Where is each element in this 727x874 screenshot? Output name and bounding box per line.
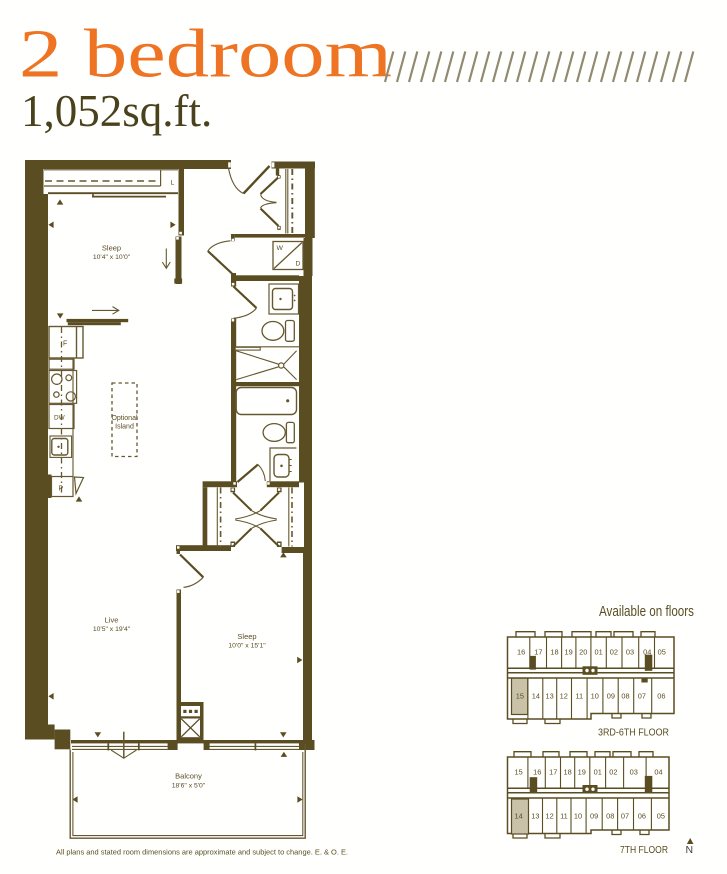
svg-text:16: 16 [533, 768, 541, 777]
svg-text:P: P [59, 486, 64, 493]
svg-text:Live: Live [105, 616, 119, 625]
svg-text:16: 16 [517, 648, 525, 657]
svg-text:Sleep: Sleep [102, 244, 121, 253]
svg-text:7TH FLOOR: 7TH FLOOR [620, 844, 668, 856]
svg-text:11: 11 [560, 812, 568, 821]
svg-text:10: 10 [574, 812, 582, 821]
svg-text:10'5" x 19'4": 10'5" x 19'4" [93, 626, 131, 633]
svg-text:Sleep: Sleep [237, 632, 256, 641]
svg-text:15: 15 [516, 692, 524, 701]
svg-text:05: 05 [657, 812, 665, 821]
svg-text:10'4" x 10'0": 10'4" x 10'0" [93, 254, 131, 261]
svg-text:15: 15 [514, 768, 522, 777]
svg-text:All plans and stated room dime: All plans and stated room dimensions are… [56, 848, 348, 857]
svg-text:17: 17 [549, 768, 557, 777]
svg-text:DW: DW [54, 415, 66, 422]
svg-text:Optional: Optional [111, 415, 138, 422]
svg-text:2 bedroom: 2 bedroom [19, 16, 392, 92]
svg-text:18: 18 [550, 648, 558, 657]
svg-text:09: 09 [607, 692, 615, 701]
svg-text:13: 13 [531, 812, 539, 821]
svg-text:11: 11 [575, 692, 583, 701]
svg-text:08: 08 [621, 692, 629, 701]
svg-text:1,052sq.ft.: 1,052sq.ft. [21, 86, 212, 136]
svg-text:14: 14 [532, 692, 540, 701]
svg-text:06: 06 [638, 812, 646, 821]
svg-text:05: 05 [658, 648, 666, 657]
svg-text:04: 04 [654, 768, 662, 777]
svg-text:Island: Island [115, 424, 134, 431]
svg-text:09: 09 [590, 812, 598, 821]
svg-text:04: 04 [643, 648, 651, 657]
svg-text:18: 18 [563, 768, 571, 777]
svg-text:18'6" x 5'0": 18'6" x 5'0" [172, 783, 206, 790]
svg-text:07: 07 [621, 812, 629, 821]
svg-text:12: 12 [545, 812, 553, 821]
svg-text:Balcony: Balcony [175, 772, 202, 781]
svg-text:19: 19 [564, 648, 572, 657]
svg-text:08: 08 [606, 812, 614, 821]
svg-text:14: 14 [514, 812, 522, 821]
svg-text:3RD-6TH FLOOR: 3RD-6TH FLOOR [598, 727, 669, 739]
svg-text:Available on floors: Available on floors [599, 603, 694, 620]
svg-text:06: 06 [657, 692, 665, 701]
svg-text:03: 03 [626, 648, 634, 657]
svg-text:10'0" x 15'1": 10'0" x 15'1" [228, 643, 266, 650]
svg-text:20: 20 [579, 648, 587, 657]
svg-text:07: 07 [638, 692, 646, 701]
svg-text:01: 01 [594, 768, 602, 777]
svg-text:17: 17 [534, 648, 542, 657]
svg-text:N: N [686, 844, 694, 856]
svg-text:03: 03 [630, 768, 638, 777]
svg-text:02: 02 [610, 648, 618, 657]
svg-text:W: W [277, 245, 284, 252]
svg-text:L: L [171, 180, 175, 187]
svg-text:12: 12 [560, 692, 568, 701]
svg-text:01: 01 [594, 648, 602, 657]
svg-text:D: D [296, 261, 301, 268]
svg-text:F: F [63, 341, 67, 348]
svg-text:19: 19 [578, 768, 586, 777]
svg-text:13: 13 [545, 692, 553, 701]
svg-text:02: 02 [609, 768, 617, 777]
svg-text:10: 10 [591, 692, 599, 701]
